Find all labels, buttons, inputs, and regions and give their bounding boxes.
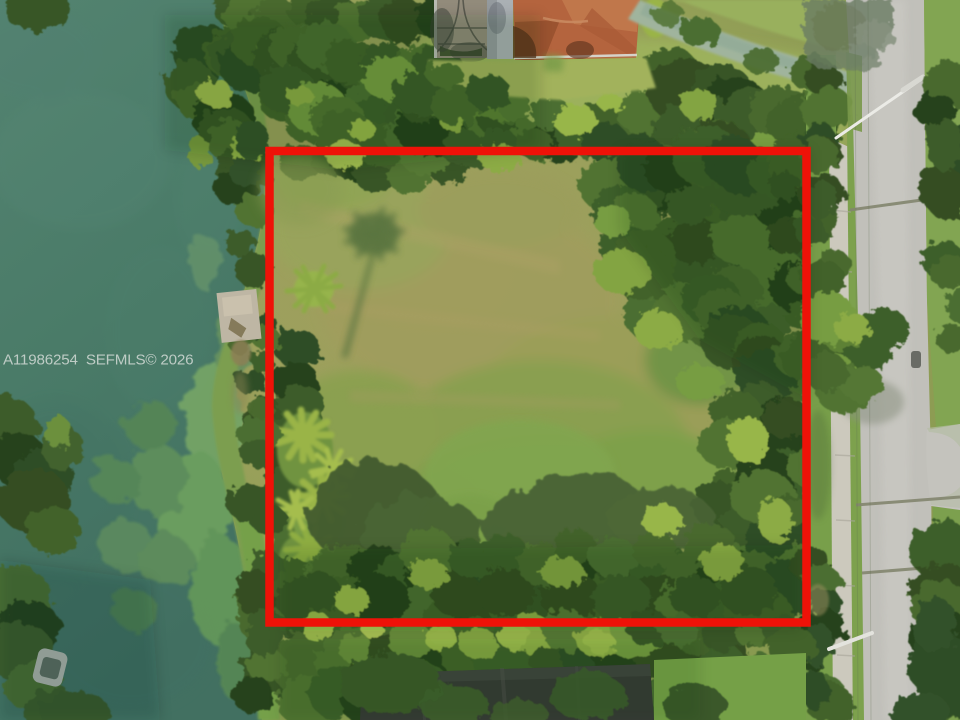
svg-text:A11986254 SEFMLS© 2026: A11986254 SEFMLS© 2026 bbox=[3, 352, 193, 369]
